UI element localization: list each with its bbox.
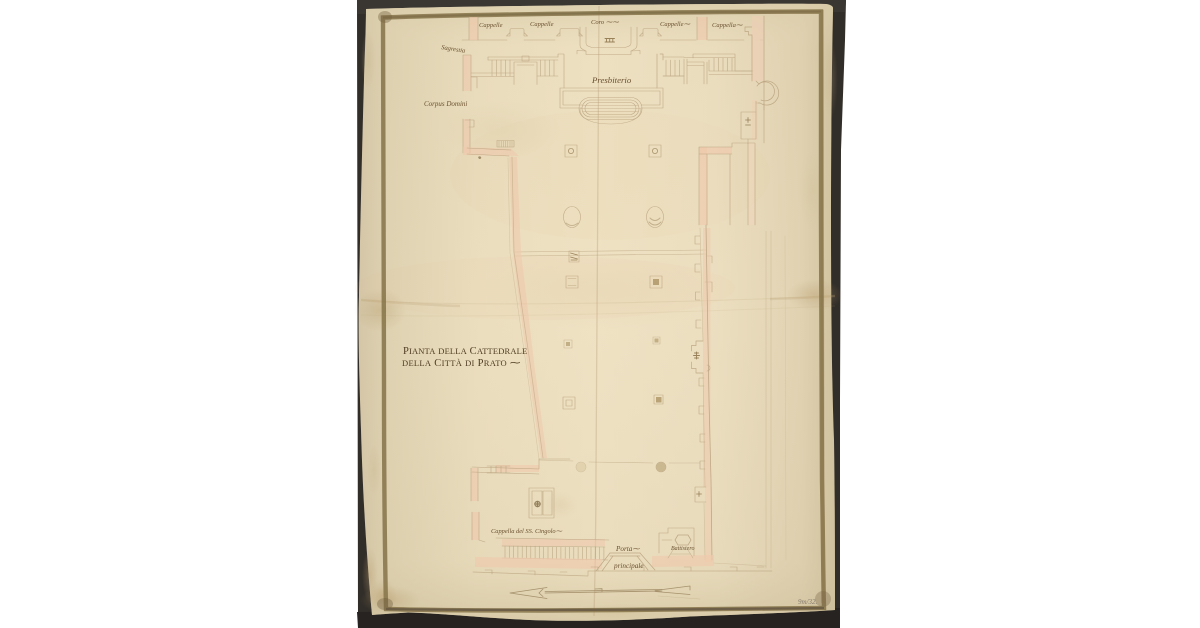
svg-text:Coro ⁓⁓: Coro ⁓⁓ [591,19,619,26]
svg-text:Battistero: Battistero [671,546,694,552]
svg-text:Cappella del SS. Cingolo⁓: Cappella del SS. Cingolo⁓ [491,528,563,535]
svg-text:Presbiterio: Presbiterio [591,75,632,85]
svg-text:Cappella⁓: Cappella⁓ [712,22,743,29]
svg-text:DELLA CITTÀ DI PRATO ⁓: DELLA CITTÀ DI PRATO ⁓ [402,358,521,369]
svg-text:PIANTA DELLA CATTEDRALE: PIANTA DELLA CATTEDRALE [403,346,527,357]
svg-text:Cappelle: Cappelle [479,22,503,29]
svg-text:9m/32.: 9m/32. [798,598,818,606]
svg-text:Corpus Domini: Corpus Domini [424,100,467,108]
svg-text:Porta⁓: Porta⁓ [615,545,640,553]
svg-text:Cappelle⁓: Cappelle⁓ [660,21,690,28]
svg-text:Cappelle: Cappelle [530,21,554,28]
svg-text:principale: principale [613,562,644,570]
